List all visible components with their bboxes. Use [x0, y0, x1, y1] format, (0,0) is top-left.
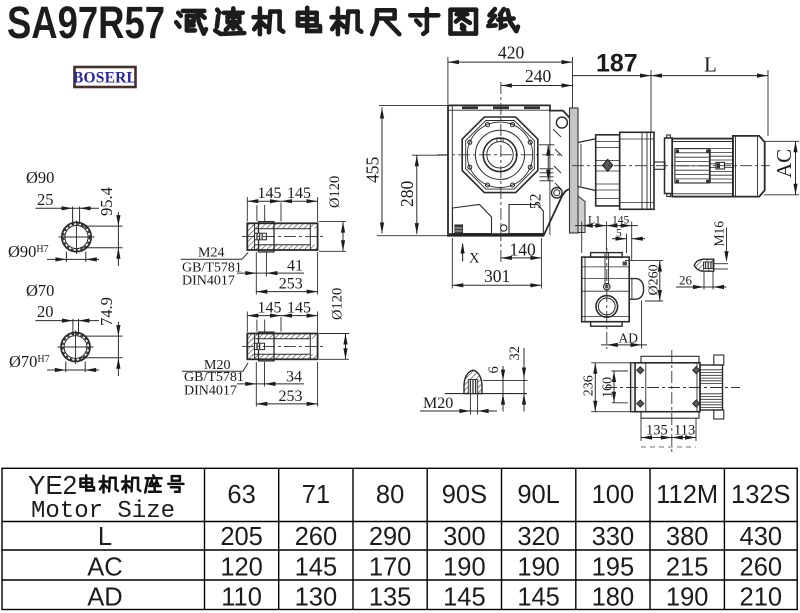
svg-text:BOSERL: BOSERL [73, 70, 137, 87]
svg-text:63: 63 [227, 481, 255, 509]
svg-text:41: 41 [287, 258, 303, 275]
svg-text:M16: M16 [712, 221, 727, 247]
svg-text:34: 34 [286, 368, 302, 385]
svg-text:210: 210 [740, 584, 783, 612]
svg-text:190: 190 [517, 554, 560, 582]
svg-text:145: 145 [517, 584, 560, 612]
svg-text:52: 52 [528, 194, 545, 210]
svg-text:170: 170 [369, 554, 412, 582]
svg-text:90S: 90S [442, 481, 487, 509]
svg-text:90L: 90L [517, 481, 560, 509]
svg-text:Ø120: Ø120 [330, 288, 346, 320]
svg-text:253: 253 [279, 388, 303, 405]
svg-text:140: 140 [510, 239, 537, 259]
svg-text:71: 71 [302, 481, 330, 509]
svg-text:74.9: 74.9 [97, 297, 116, 326]
svg-text:132S: 132S [731, 481, 791, 509]
svg-text:112M: 112M [656, 481, 718, 509]
svg-text:26: 26 [679, 273, 693, 288]
svg-text:100: 100 [592, 481, 635, 509]
svg-text:Ø120: Ø120 [327, 176, 343, 208]
svg-text:260: 260 [295, 523, 338, 551]
svg-text:236: 236 [582, 375, 597, 396]
svg-text:380: 380 [666, 523, 709, 551]
svg-text:X: X [469, 251, 480, 267]
svg-text:145: 145 [287, 185, 311, 202]
svg-text:145: 145 [287, 300, 311, 317]
svg-text:113: 113 [674, 423, 695, 439]
svg-text:190: 190 [443, 554, 486, 582]
svg-text:AD: AD [619, 331, 639, 346]
svg-text:145: 145 [443, 584, 486, 612]
svg-text:455: 455 [363, 157, 383, 184]
svg-text:110: 110 [221, 584, 262, 612]
svg-text:187: 187 [596, 50, 638, 78]
svg-text:145: 145 [258, 185, 282, 202]
svg-text:280: 280 [397, 181, 417, 208]
svg-text:180: 180 [592, 584, 635, 612]
svg-text:Ø90: Ø90 [26, 168, 54, 187]
svg-text:AC: AC [87, 554, 122, 582]
svg-text:160: 160 [601, 377, 616, 398]
svg-text:32: 32 [507, 346, 523, 361]
svg-text:190: 190 [666, 584, 709, 612]
svg-text:M24: M24 [198, 246, 224, 261]
svg-text:301: 301 [484, 266, 510, 286]
svg-text:430: 430 [740, 523, 783, 551]
svg-text:195: 195 [592, 554, 635, 582]
svg-text:420: 420 [498, 43, 525, 63]
svg-text:M20: M20 [423, 395, 453, 412]
svg-text:145: 145 [295, 554, 338, 582]
svg-text:Ø260: Ø260 [647, 264, 662, 295]
svg-text:L: L [704, 53, 717, 77]
svg-text:DIN4017: DIN4017 [184, 383, 237, 398]
svg-text:L1: L1 [588, 214, 601, 226]
svg-text:80: 80 [376, 481, 404, 509]
svg-text:YE2: YE2 [28, 470, 77, 500]
svg-text:145: 145 [258, 300, 282, 317]
svg-text:5: 5 [616, 228, 622, 240]
svg-text:320: 320 [517, 523, 560, 551]
svg-text:135: 135 [646, 423, 668, 439]
svg-text:Ø90H7: Ø90H7 [8, 242, 49, 261]
svg-text:Motor Size: Motor Size [31, 498, 175, 525]
svg-text:95.4: 95.4 [97, 187, 116, 216]
svg-text:AC: AC [772, 149, 796, 178]
svg-text:145: 145 [612, 214, 630, 226]
svg-text:130: 130 [295, 584, 338, 612]
svg-text:20: 20 [37, 302, 54, 321]
svg-text:135: 135 [369, 584, 412, 612]
svg-text:L: L [98, 523, 112, 551]
svg-text:290: 290 [369, 523, 412, 551]
svg-text:Ø70H7: Ø70H7 [9, 352, 50, 371]
svg-text:6: 6 [486, 366, 502, 373]
svg-text:DIN4017: DIN4017 [182, 274, 235, 289]
svg-text:205: 205 [220, 523, 263, 551]
svg-text:Ø70: Ø70 [26, 281, 54, 300]
svg-text:300: 300 [443, 523, 486, 551]
svg-text:120: 120 [220, 554, 263, 582]
svg-text:253: 253 [279, 276, 303, 293]
svg-text:215: 215 [666, 554, 709, 582]
svg-text:260: 260 [740, 554, 783, 582]
svg-text:AD: AD [87, 584, 122, 612]
svg-text:SA97R57: SA97R57 [7, 0, 165, 48]
svg-text:330: 330 [592, 523, 635, 551]
svg-text:240: 240 [525, 66, 552, 86]
svg-text:25: 25 [37, 190, 54, 209]
